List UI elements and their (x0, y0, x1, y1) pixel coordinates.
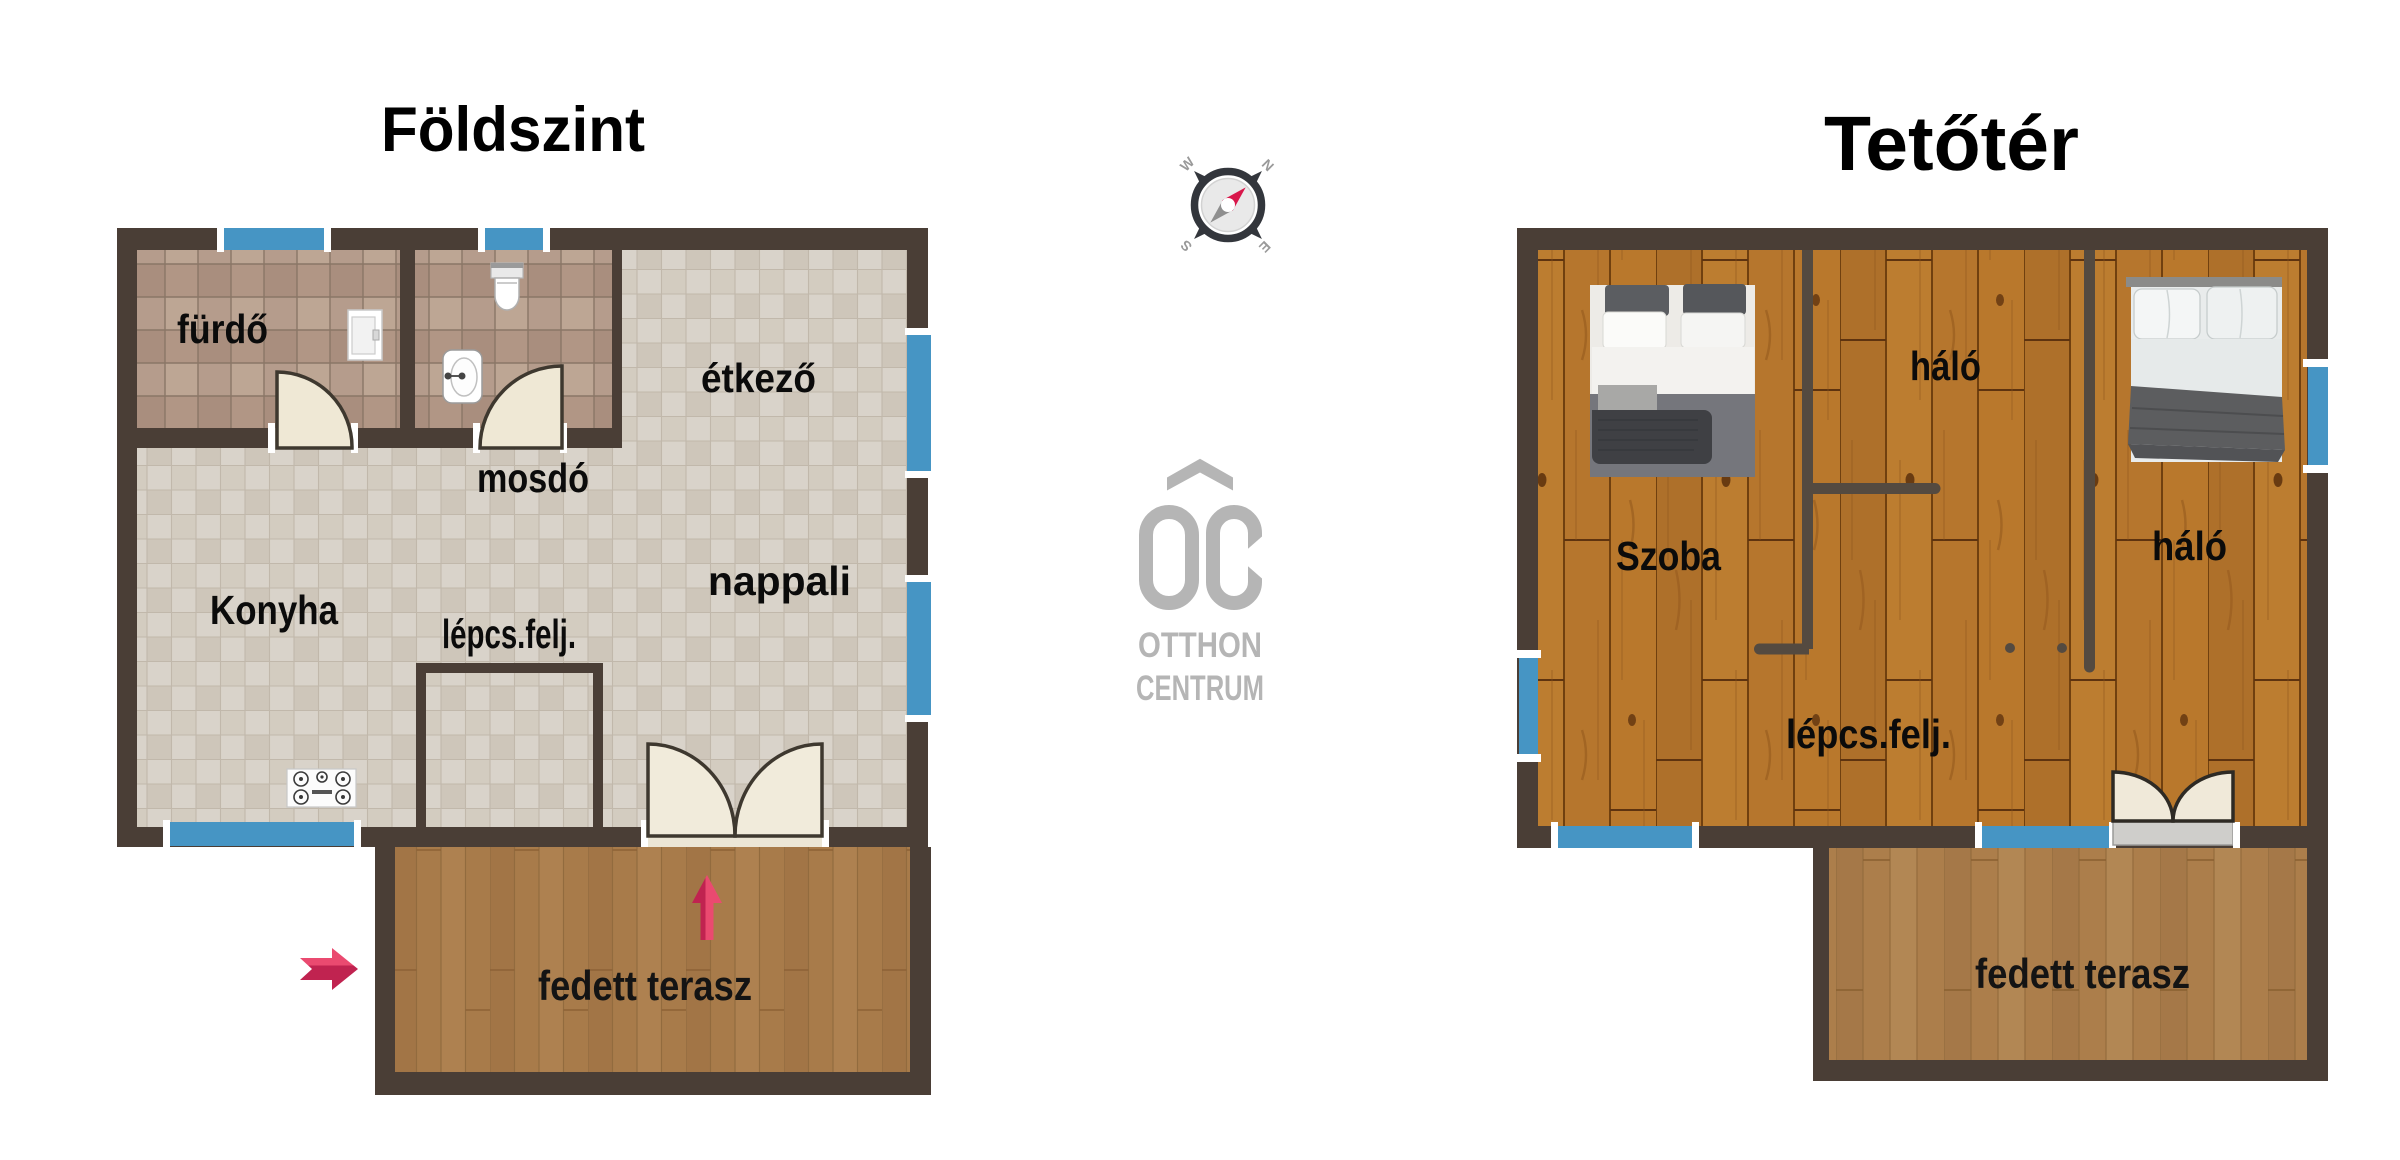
svg-text:háló: háló (2152, 523, 2227, 569)
svg-text:lépcs.felj.: lépcs.felj. (1786, 711, 1951, 757)
svg-text:étkező: étkező (701, 355, 816, 401)
svg-text:fürdő: fürdő (177, 306, 268, 352)
svg-text:mosdó: mosdó (477, 455, 589, 501)
svg-text:Szoba: Szoba (1616, 533, 1722, 579)
svg-text:OTTHON: OTTHON (1138, 626, 1262, 665)
svg-text:háló: háló (1910, 343, 1981, 389)
svg-text:CENTRUM: CENTRUM (1136, 669, 1264, 708)
svg-text:nappali: nappali (708, 558, 851, 604)
svg-text:fedett terasz: fedett terasz (1975, 950, 2190, 997)
svg-text:fedett terasz: fedett terasz (538, 962, 752, 1009)
svg-text:Földszint: Földszint (381, 95, 645, 165)
svg-text:lépcs.felj.: lépcs.felj. (442, 611, 576, 657)
svg-text:Konyha: Konyha (210, 587, 339, 633)
svg-text:Tetőtér: Tetőtér (1824, 101, 2079, 187)
